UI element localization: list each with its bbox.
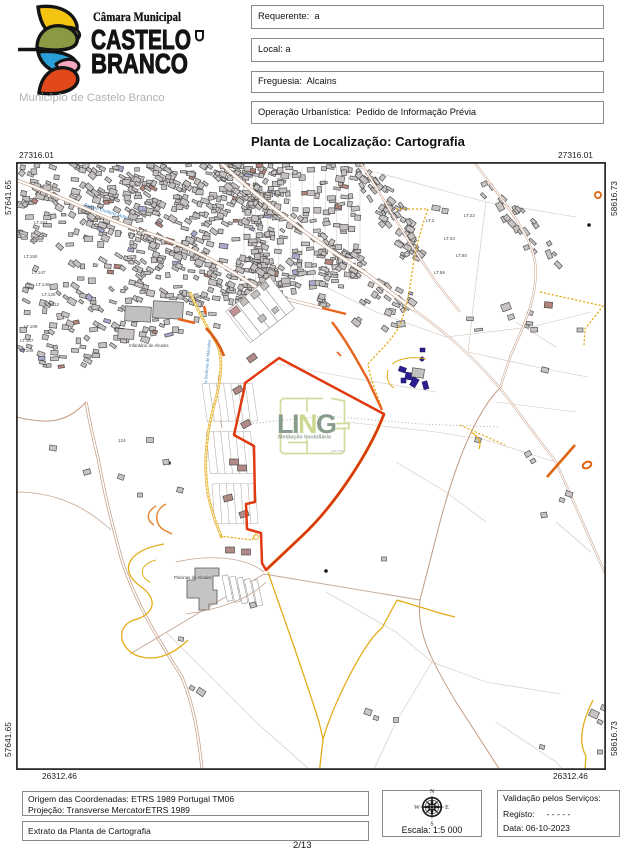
svg-text:LT.22: LT.22 xyxy=(464,213,475,218)
svg-text:N: N xyxy=(430,789,435,795)
svg-text:LT.152: LT.152 xyxy=(30,238,44,243)
svg-text:LT.59: LT.59 xyxy=(434,270,445,275)
svg-text:BRANCO: BRANCO xyxy=(91,48,188,79)
svg-text:AMI 17358: AMI 17358 xyxy=(331,449,344,453)
svg-text:LT.106: LT.106 xyxy=(20,348,34,353)
svg-text:LT.112: LT.112 xyxy=(46,302,60,307)
svg-text:W: W xyxy=(414,805,420,811)
svg-text:LT.150: LT.150 xyxy=(24,254,38,259)
svg-text:LT.2: LT.2 xyxy=(426,218,435,223)
svg-text:LT.34: LT.34 xyxy=(444,236,455,241)
svg-text:LT.147: LT.147 xyxy=(32,270,46,275)
svg-text:Mediação Imobiliária: Mediação Imobiliária xyxy=(278,435,332,441)
svg-text:Câmara Municipal: Câmara Municipal xyxy=(93,9,181,24)
svg-text:LT.140: LT.140 xyxy=(36,282,50,287)
svg-text:LT.153: LT.153 xyxy=(34,220,48,225)
svg-text:E: E xyxy=(445,805,449,811)
svg-text:LT.109: LT.109 xyxy=(24,324,38,329)
svg-text:LT.60: LT.60 xyxy=(456,253,467,258)
svg-text:LT.107: LT.107 xyxy=(20,338,34,343)
svg-text:Município de Castelo Branco: Município de Castelo Branco xyxy=(19,92,165,104)
svg-text:LT.125: LT.125 xyxy=(42,292,56,297)
svg-text:Infantário de Alcains: Infantário de Alcains xyxy=(129,343,169,348)
svg-text:124: 124 xyxy=(118,438,126,443)
svg-text:Piscinas de Alcains: Piscinas de Alcains xyxy=(174,575,212,580)
svg-text:LT.30: LT.30 xyxy=(136,228,147,233)
